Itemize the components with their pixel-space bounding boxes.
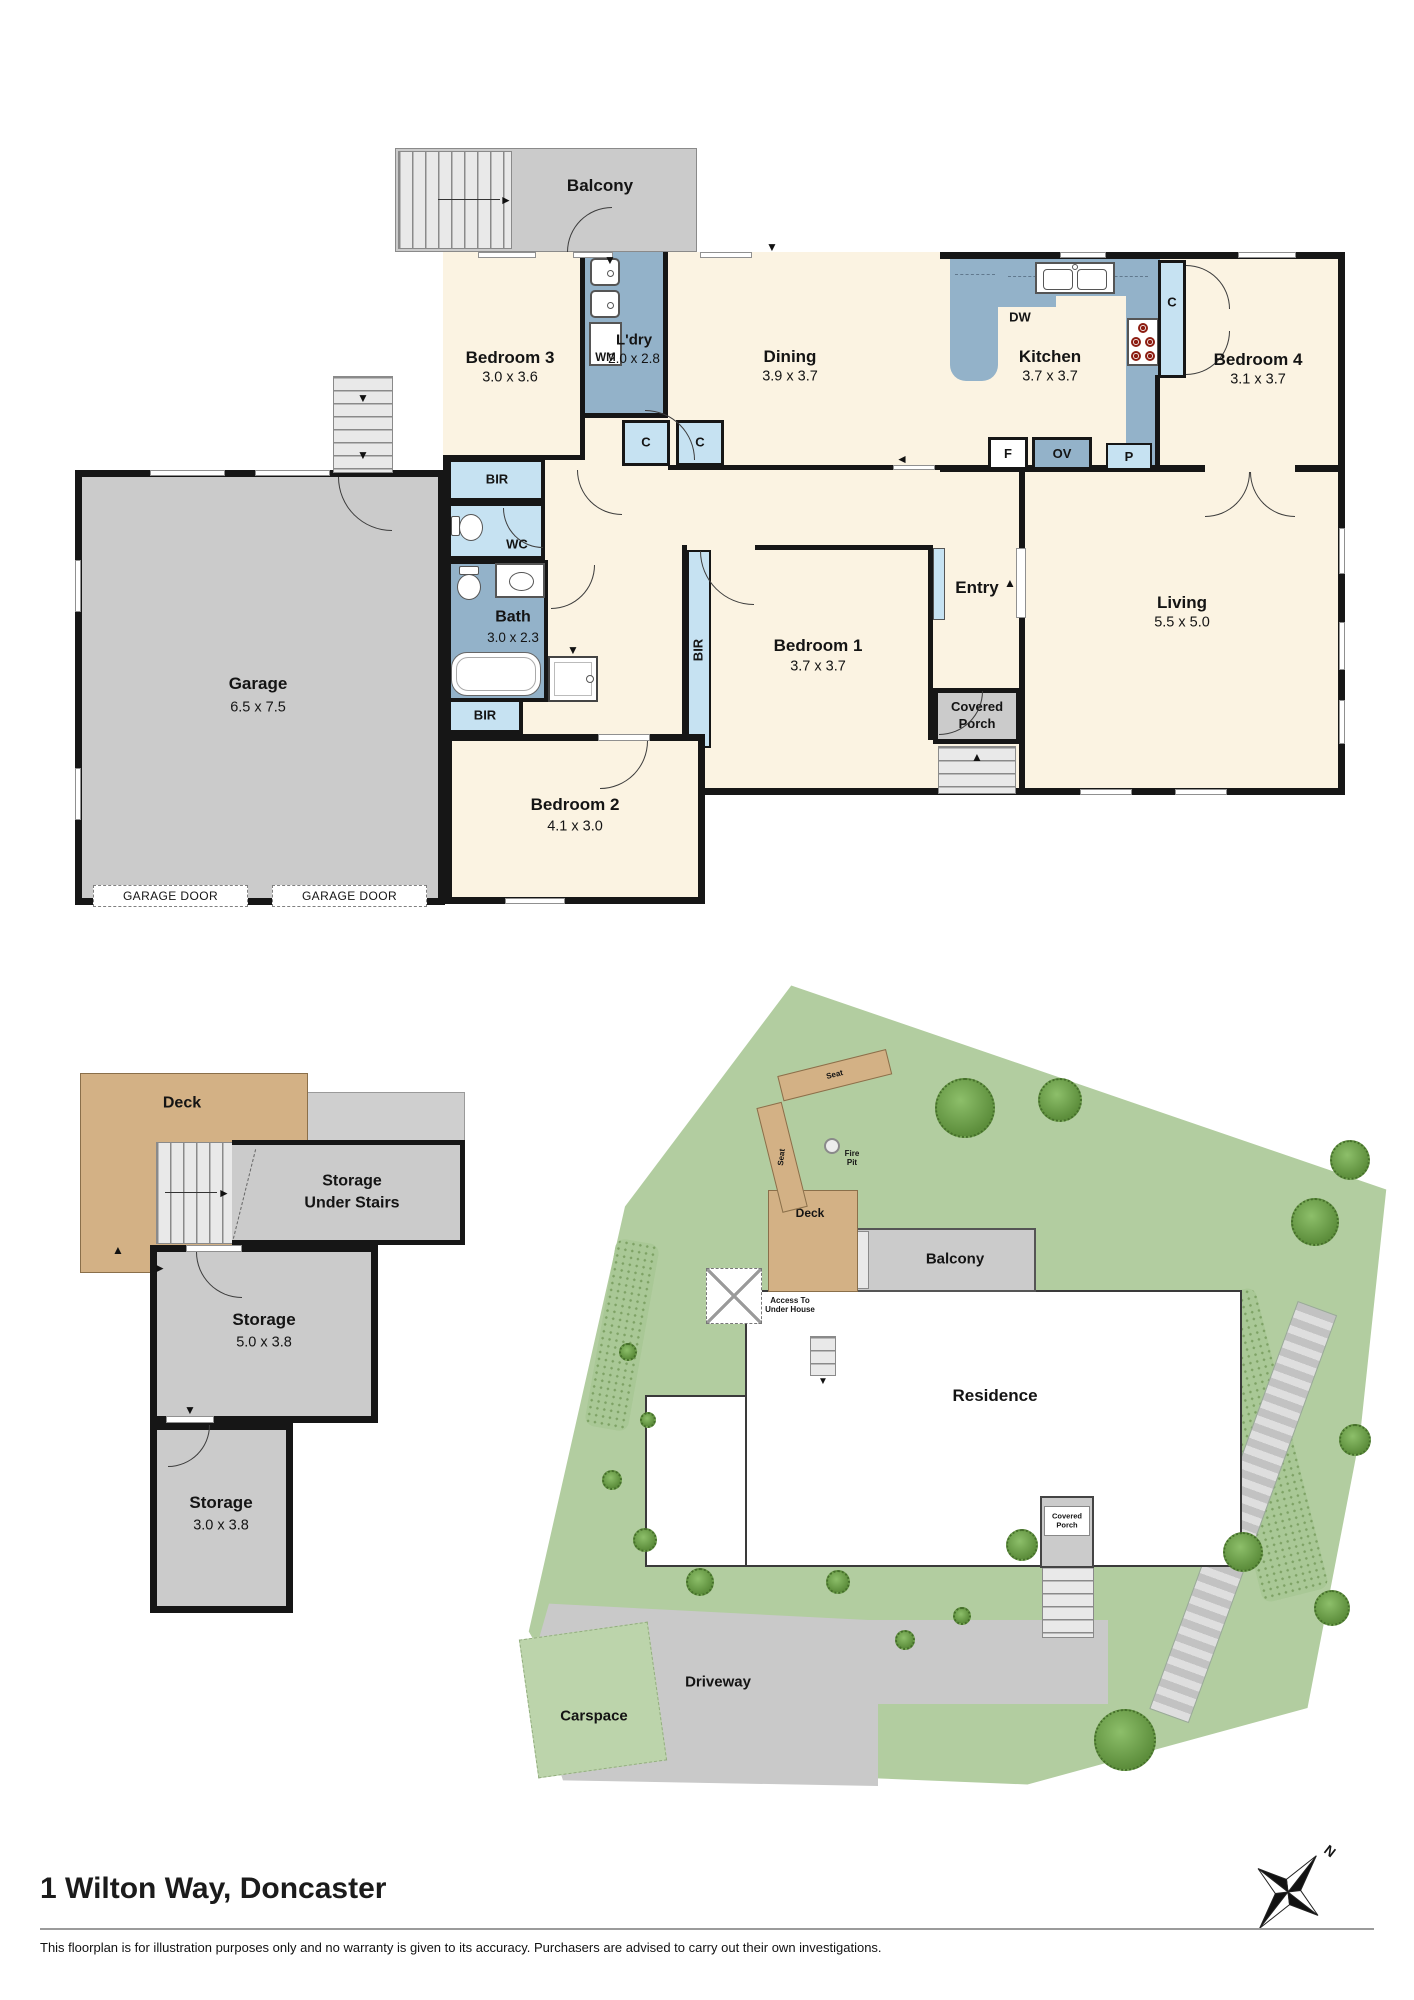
toilet-icon	[457, 574, 481, 600]
hall-wall	[1295, 465, 1345, 472]
bath-dims: 3.0 x 2.3	[487, 629, 539, 647]
kitchen-peninsula	[950, 259, 998, 381]
laundry-dims: 2.0 x 2.8	[608, 350, 660, 368]
pantry: P	[1106, 443, 1152, 470]
garage-window	[75, 768, 81, 820]
laundry-label: L'dry	[616, 330, 652, 350]
storage-under-stairs-label: Storage	[322, 1172, 382, 1193]
tree-icon	[686, 1568, 714, 1596]
kitchen-label: Kitchen	[1019, 346, 1081, 368]
seam-cover	[747, 1400, 755, 1562]
pantry-label: P	[1125, 449, 1134, 464]
storage-low-label: Storage	[189, 1492, 252, 1514]
window	[1060, 252, 1106, 258]
garage-door-label: GARAGE DOOR	[123, 889, 218, 903]
tree-icon	[935, 1078, 995, 1138]
tree-icon	[1291, 1198, 1339, 1246]
kitchen-sink-icon	[1035, 262, 1115, 294]
site-carspace-label: Carspace	[560, 1706, 628, 1726]
entry-arrow-icon: ▲	[1004, 577, 1016, 589]
dishwasher-label: DW	[1009, 310, 1031, 327]
storage-door-gap	[166, 1416, 214, 1423]
window	[1238, 252, 1296, 258]
site-driveway-label: Driveway	[685, 1672, 751, 1692]
fridge-label: F	[1004, 446, 1012, 461]
storage-under-stairs	[232, 1140, 465, 1245]
storage-arrow-icon: ▼	[184, 1404, 196, 1416]
oven-label: OV	[1053, 446, 1072, 461]
entry-side-window	[933, 548, 945, 620]
entry-label: Entry	[955, 577, 998, 599]
lattice-icon	[706, 1268, 762, 1324]
site-balcony-label: Balcony	[926, 1249, 984, 1269]
window	[478, 252, 536, 258]
storage-under-stairs-label2: Under Stairs	[304, 1194, 399, 1215]
bedroom1-label: Bedroom 1	[774, 635, 863, 657]
garage-window	[255, 470, 330, 476]
shower-arrow-icon: ▼	[567, 644, 579, 656]
deck-arrow-icon: ▲	[112, 1244, 124, 1256]
tree-icon	[1339, 1424, 1371, 1456]
window	[700, 252, 752, 258]
deck-label: Deck	[163, 1094, 201, 1115]
oven: OV	[1032, 437, 1092, 470]
access-label: Access To Under House	[765, 1296, 815, 1314]
storage-door-gap	[186, 1245, 242, 1252]
bedroom1-dims: 3.7 x 3.7	[790, 658, 846, 677]
tree-icon	[1094, 1709, 1156, 1771]
bir-label: BIR	[474, 708, 496, 725]
storage-mid-dims: 5.0 x 3.8	[236, 1334, 292, 1353]
bedroom4-closet-label: C	[1167, 295, 1176, 312]
vanity-sink-icon	[495, 563, 545, 598]
site-seat-label: Seat	[776, 1148, 788, 1166]
tree-icon	[619, 1343, 637, 1361]
bedroom3-label: Bedroom 3	[466, 347, 555, 369]
opening-arrow-icon: ◄	[896, 453, 908, 465]
fire-pit-label: Fire Pit	[840, 1149, 864, 1167]
floorplan-page: ► Balcony WM DW C C C ◄ F OV P BIR	[0, 0, 1414, 2000]
site-porch-steps	[1042, 1566, 1094, 1638]
tree-icon	[1314, 1590, 1350, 1626]
stairs-arrow-icon: ►	[218, 1187, 230, 1199]
bathtub-icon	[451, 652, 541, 696]
kitchen-right-wall	[1155, 375, 1160, 470]
shower-icon	[548, 656, 598, 702]
window	[1339, 700, 1345, 744]
site-carspace-area	[519, 1622, 667, 1779]
living-label: Living	[1157, 592, 1207, 614]
balcony-stairs	[398, 151, 512, 249]
bedroom4-dims: 3.1 x 3.7	[1230, 371, 1286, 390]
porch-arrow-icon: ▲	[971, 751, 983, 763]
storage-low-dims: 3.0 x 3.8	[193, 1517, 249, 1536]
dining-dims: 3.9 x 3.7	[762, 368, 818, 387]
tree-icon	[1223, 1532, 1263, 1572]
laundry-tub-icon	[590, 290, 620, 318]
tree-icon	[640, 1412, 656, 1428]
living-dims: 5.5 x 5.0	[1154, 614, 1210, 633]
tree-icon	[1006, 1529, 1038, 1561]
footer-rule	[40, 1928, 1374, 1930]
bedroom1-wall-top	[755, 545, 933, 550]
fire-pit-icon	[824, 1138, 840, 1154]
bedroom4-closet	[1158, 260, 1186, 378]
garage-dims: 6.5 x 7.5	[230, 699, 286, 718]
tree-icon	[1330, 1140, 1370, 1180]
window	[1339, 528, 1345, 574]
storage-arrow-icon: ►	[154, 1262, 166, 1274]
dishwasher-counter	[998, 296, 1056, 307]
toilet-icon	[459, 514, 483, 541]
site-residence	[745, 1290, 1242, 1567]
door-arrow-icon: ▼	[604, 254, 616, 266]
garage-door: GARAGE DOOR	[93, 885, 248, 907]
page-title: 1 Wilton Way, Doncaster	[40, 1872, 386, 1906]
tree-icon	[953, 1607, 971, 1625]
stair-run-line	[438, 199, 500, 200]
access-arrow-icon: ▼	[818, 1377, 828, 1387]
hall-closet-label: C	[695, 435, 704, 452]
tree-icon	[633, 1528, 657, 1552]
bath-label: Bath	[495, 608, 531, 629]
window	[1080, 789, 1132, 795]
tree-icon	[602, 1470, 622, 1490]
window	[1175, 789, 1227, 795]
window	[1339, 622, 1345, 670]
kitchen-dims: 3.7 x 3.7	[1022, 368, 1078, 387]
site-residence-wing	[645, 1395, 747, 1567]
entry-living-wall	[1019, 472, 1025, 548]
garage-window	[75, 560, 81, 612]
stair-arrow-right-icon: ►	[500, 194, 512, 206]
garage-window	[150, 470, 225, 476]
site-residence-label: Residence	[952, 1385, 1037, 1407]
stair-run-line	[165, 1192, 217, 1193]
stairs-arrow-icon: ▼	[357, 449, 369, 461]
bedroom3-dims: 3.0 x 3.6	[482, 369, 538, 388]
disclaimer-text: This floorplan is for illustration purpo…	[40, 1940, 882, 1955]
dining-label: Dining	[764, 346, 817, 368]
bedroom2-door-gap	[598, 734, 650, 741]
stairs-arrow-icon: ▼	[357, 392, 369, 404]
tree-icon	[1038, 1078, 1082, 1122]
balcony-label: Balcony	[567, 175, 633, 197]
storage-mid-label: Storage	[232, 1309, 295, 1331]
fridge: F	[988, 437, 1028, 470]
bir-label: BIR	[691, 639, 708, 661]
door-arrow-icon: ▼	[766, 241, 778, 253]
bedroom2-dims: 4.1 x 3.0	[547, 818, 603, 837]
bedroom4-label: Bedroom 4	[1214, 349, 1303, 371]
garage-door: GARAGE DOOR	[272, 885, 427, 907]
bedroom2-window	[505, 898, 565, 904]
bedroom2-label: Bedroom 2	[531, 794, 620, 816]
cooktop-icon	[1127, 318, 1159, 366]
site-covered-porch-label: Covered Porch	[1046, 1512, 1088, 1529]
access-stairs	[810, 1336, 836, 1376]
counter-dash	[955, 274, 995, 275]
garage-door-label: GARAGE DOOR	[302, 889, 397, 903]
tree-icon	[826, 1570, 850, 1594]
garage-label: Garage	[229, 673, 288, 695]
bir-label: BIR	[486, 472, 508, 489]
tree-icon	[895, 1630, 915, 1650]
front-door-panel	[1016, 548, 1026, 618]
